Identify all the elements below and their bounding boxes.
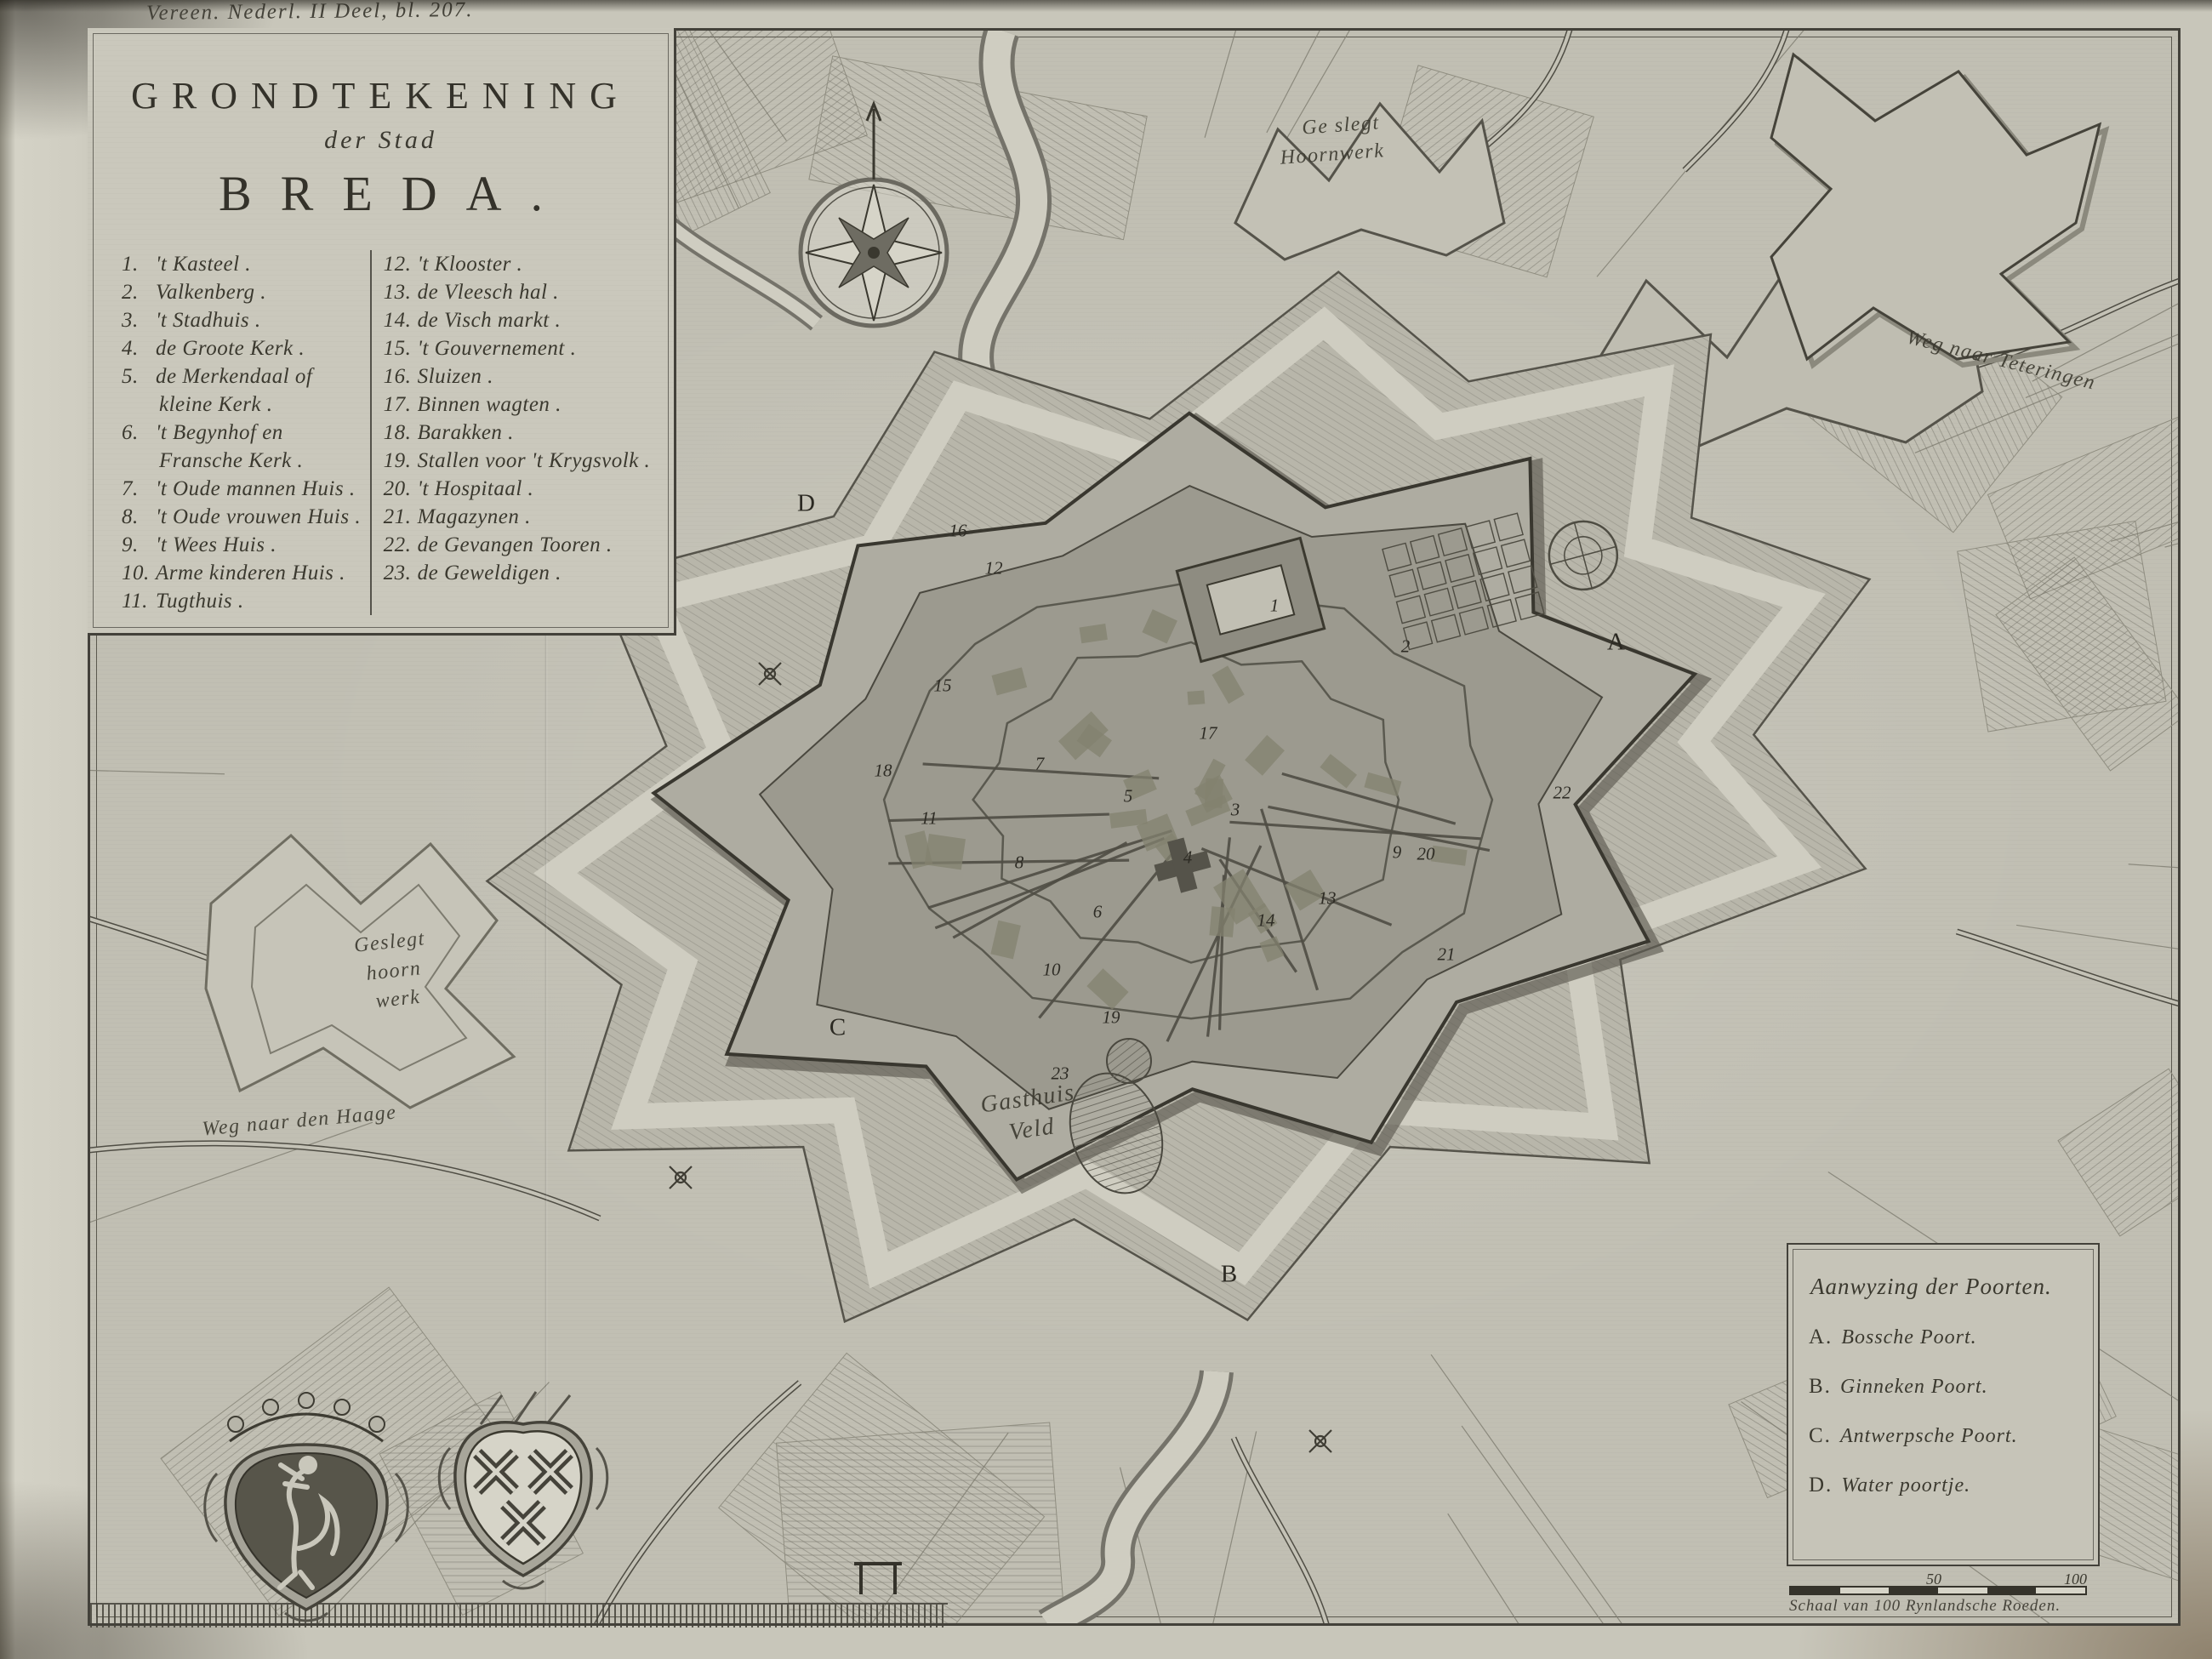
title-line-2: der Stad — [88, 124, 674, 157]
legend-item: 7.'t Oude mannen Huis . — [122, 475, 370, 503]
legend-item: 10.Arme kinderen Huis . — [122, 559, 370, 587]
legend-item: 9.'t Wees Huis . — [122, 531, 370, 559]
scale-bar: 50 100 Schaal van 100 Rynlandsche Roeden… — [1789, 1571, 2087, 1615]
legend-item: 18.Barakken . — [384, 419, 662, 447]
gates-title: Aanwyzing der Poorten. — [1810, 1274, 2098, 1300]
legend-item: 4.de Groote Kerk . — [122, 334, 370, 362]
gate-item: C.Antwerpsche Poort. — [1809, 1424, 2098, 1448]
legend-item: 16.Sluizen . — [384, 362, 662, 391]
breda-shield — [439, 1392, 607, 1588]
windmill-icon — [1309, 1430, 1331, 1452]
legend-box: GRONDTEKENING der Stad BREDA. 1.'t Kaste… — [88, 28, 676, 636]
legend-item: 13.de Vleesch hal . — [384, 278, 662, 306]
legend-item: 15.'t Gouvernement . — [384, 334, 662, 362]
gate-item: B.Ginneken Poort. — [1809, 1375, 2098, 1399]
lion-shield — [205, 1393, 408, 1621]
windmill-icon — [670, 1166, 692, 1189]
legend-column-left: 1.'t Kasteel .2.Valkenberg .3.'t Stadhui… — [122, 250, 370, 615]
scale-ticks: 50 100 — [1789, 1571, 2087, 1586]
gate-item: D.Water poortje. — [1809, 1474, 2098, 1497]
map-title: GRONDTEKENING der Stad BREDA. — [88, 72, 674, 225]
scale-tick-mid: 50 — [1926, 1571, 1941, 1588]
legend-item: 22.de Gevangen Tooren . — [384, 531, 662, 559]
gates-list: A.Bossche Poort.B.Ginneken Poort.C.Antwe… — [1788, 1325, 2098, 1497]
title-line-3: BREDA. — [88, 163, 674, 225]
gates-legend-box: Aanwyzing der Poorten. A.Bossche Poort.B… — [1787, 1243, 2100, 1566]
title-line-1: GRONDTEKENING — [88, 72, 674, 119]
coats-of-arms — [183, 1371, 659, 1644]
legend-item: 17.Binnen wagten . — [384, 391, 662, 419]
legend-item: 21.Magazynen . — [384, 503, 662, 531]
map-photo: Vereen. Nederl. II Deel, bl. 207. GRONDT… — [0, 0, 2212, 1659]
legend-item: 11.Tugthuis . — [122, 587, 370, 615]
legend-item: 2.Valkenberg . — [122, 278, 370, 306]
legend-item: 19.Stallen voor 't Krygsvolk . — [384, 447, 662, 475]
legend-item: 14.de Visch markt . — [384, 306, 662, 334]
legend-columns: 1.'t Kasteel .2.Valkenberg .3.'t Stadhui… — [122, 250, 662, 615]
legend-item: 1.'t Kasteel . — [122, 250, 370, 278]
handwritten-annotation: Vereen. Nederl. II Deel, bl. 207. — [146, 0, 474, 26]
scale-tick-end: 100 — [2064, 1571, 2087, 1588]
legend-item: 20.'t Hospitaal . — [384, 475, 662, 503]
legend-column-right: 12.'t Klooster .13.de Vleesch hal .14.de… — [370, 250, 662, 615]
gate-item: A.Bossche Poort. — [1809, 1325, 2098, 1349]
legend-item: 3.'t Stadhuis . — [122, 306, 370, 334]
legend-item: 12.'t Klooster . — [384, 250, 662, 278]
legend-item: 5.de Merkendaal of kleine Kerk . — [122, 362, 370, 419]
legend-item: 6.'t Begynhof en Fransche Kerk . — [122, 419, 370, 475]
legend-item: 8.'t Oude vrouwen Huis . — [122, 503, 370, 531]
scale-label: Schaal van 100 Rynlandsche Roeden. — [1789, 1597, 2087, 1616]
legend-item: 23.de Geweldigen . — [384, 559, 662, 587]
